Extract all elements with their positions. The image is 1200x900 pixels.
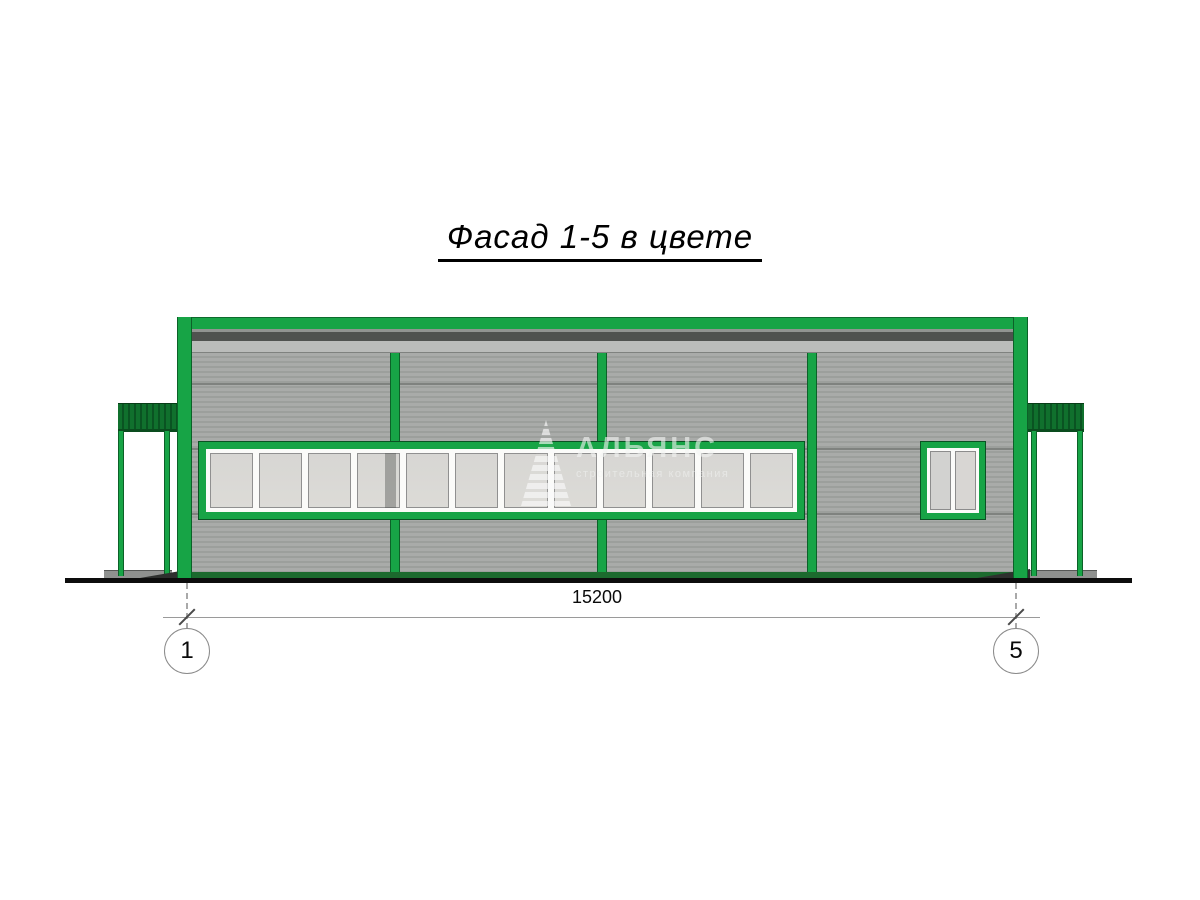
- window-pane: [701, 453, 744, 508]
- window-pane: [210, 453, 253, 508]
- window-pane: [504, 453, 547, 508]
- extension-line-axis-5: [1015, 583, 1017, 629]
- canopy-post: [164, 431, 170, 576]
- dimension-label: 15200: [497, 587, 697, 608]
- window-pane: [603, 453, 646, 508]
- axis-bubble-5: 5: [993, 628, 1039, 674]
- window-band-panes: [206, 449, 797, 512]
- canopy-post: [1077, 431, 1083, 576]
- wall-mullion: [807, 353, 817, 572]
- small-window-panes: [927, 448, 979, 513]
- canopy-post: [118, 431, 124, 576]
- small-window: [920, 441, 986, 520]
- drawing-canvas: Фасад 1-5 в цвете: [0, 0, 1200, 900]
- window-pane: [406, 453, 449, 508]
- right-corner-column: [1013, 317, 1028, 578]
- axis-5-label: 5: [1009, 637, 1022, 665]
- extension-line-axis-1: [186, 583, 188, 629]
- window-pane: [259, 453, 302, 508]
- small-window-pane: [955, 451, 976, 510]
- roof-band-dark: [192, 332, 1013, 341]
- window-pane: [455, 453, 498, 508]
- window-pane: [308, 453, 351, 508]
- canopy-footing: [1028, 570, 1097, 578]
- drawing-title: Фасад 1-5 в цвете: [438, 218, 762, 262]
- axis-bubble-1: 1: [164, 628, 210, 674]
- column-shadow-behind-glass: [385, 453, 396, 508]
- axis-1-label: 1: [180, 637, 193, 665]
- window-band: [198, 441, 805, 520]
- canopy-post: [1031, 431, 1037, 576]
- left-corner-column: [177, 317, 192, 578]
- small-window-pane: [930, 451, 951, 510]
- dimension-line: [163, 617, 1040, 618]
- window-pane: [652, 453, 695, 508]
- window-pane: [554, 453, 597, 508]
- roof-band-light: [192, 341, 1013, 353]
- window-pane: [750, 453, 793, 508]
- title-row: Фасад 1-5 в цвете: [0, 218, 1200, 262]
- left-canopy: [118, 403, 177, 432]
- right-canopy: [1028, 403, 1084, 432]
- ground-line: [65, 578, 1132, 583]
- roof-fascia-green: [177, 317, 1028, 329]
